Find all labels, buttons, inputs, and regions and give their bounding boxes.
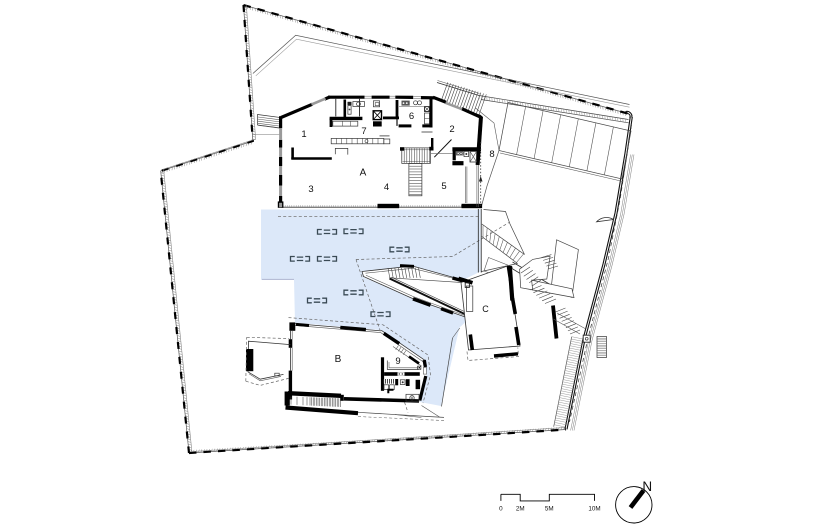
svg-text:N: N xyxy=(642,479,652,494)
svg-text:10M: 10M xyxy=(588,506,600,513)
svg-text:A: A xyxy=(360,167,367,178)
svg-text:6: 6 xyxy=(409,111,414,122)
svg-text:7: 7 xyxy=(361,126,366,137)
svg-text:9: 9 xyxy=(395,356,400,367)
svg-text:5M: 5M xyxy=(545,506,554,513)
svg-text:2: 2 xyxy=(449,124,454,135)
svg-text:1: 1 xyxy=(301,129,306,140)
svg-text:C: C xyxy=(482,304,489,314)
svg-text:2M: 2M xyxy=(516,506,525,513)
svg-text:3: 3 xyxy=(308,184,313,195)
svg-text:5: 5 xyxy=(441,181,446,192)
svg-text:4: 4 xyxy=(384,182,389,193)
svg-text:8: 8 xyxy=(489,149,494,160)
svg-text:B: B xyxy=(335,354,342,365)
svg-text:0: 0 xyxy=(499,506,503,513)
